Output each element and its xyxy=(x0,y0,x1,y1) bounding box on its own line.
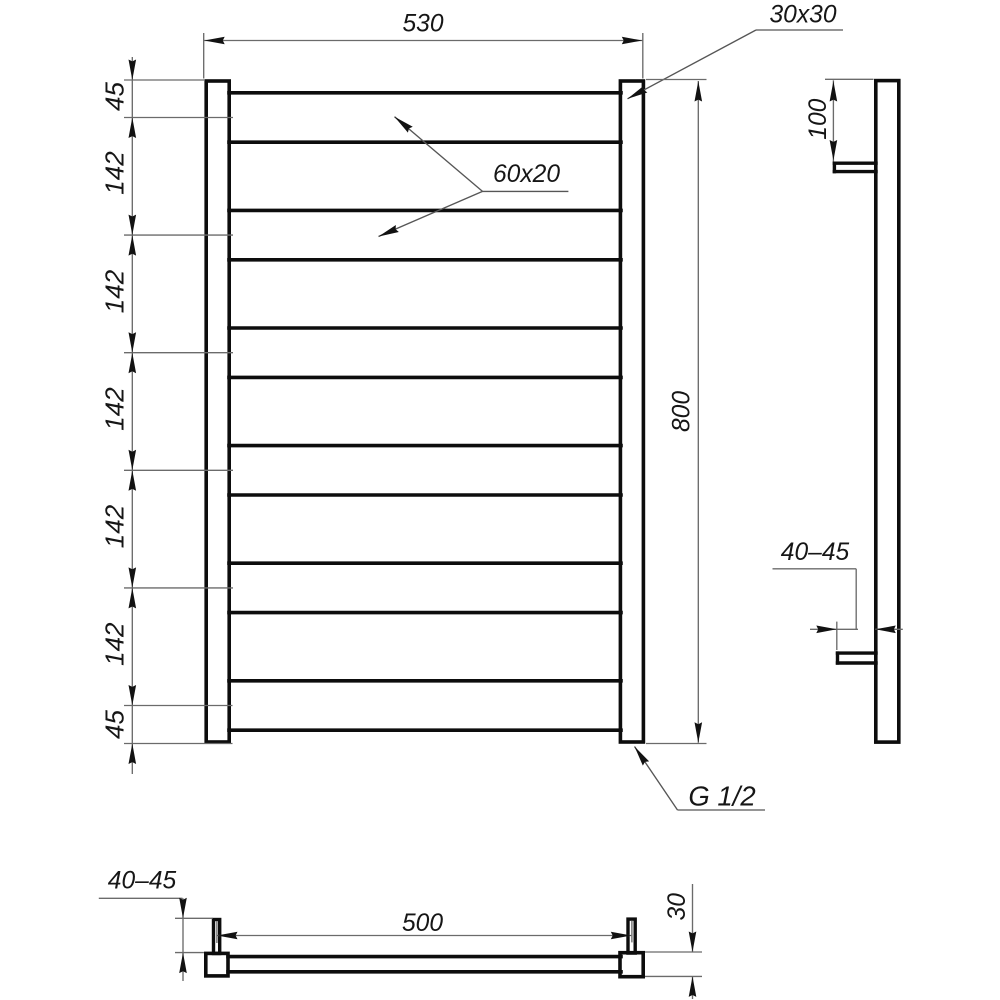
svg-text:30x30: 30x30 xyxy=(769,2,836,29)
svg-text:142: 142 xyxy=(100,622,130,666)
svg-text:40–45: 40–45 xyxy=(781,539,850,566)
svg-text:530: 530 xyxy=(402,11,443,38)
svg-text:142: 142 xyxy=(100,151,130,195)
svg-text:142: 142 xyxy=(100,269,130,313)
svg-text:30: 30 xyxy=(664,893,691,921)
svg-text:100: 100 xyxy=(805,98,832,139)
svg-text:500: 500 xyxy=(402,910,443,937)
svg-text:800: 800 xyxy=(669,391,696,432)
svg-text:45: 45 xyxy=(100,710,130,739)
svg-text:40–45: 40–45 xyxy=(108,868,177,895)
svg-text:45: 45 xyxy=(100,82,130,111)
svg-text:60x20: 60x20 xyxy=(493,161,560,188)
svg-text:G 1/2: G 1/2 xyxy=(688,781,755,812)
svg-text:142: 142 xyxy=(100,387,130,431)
svg-text:142: 142 xyxy=(100,504,130,548)
